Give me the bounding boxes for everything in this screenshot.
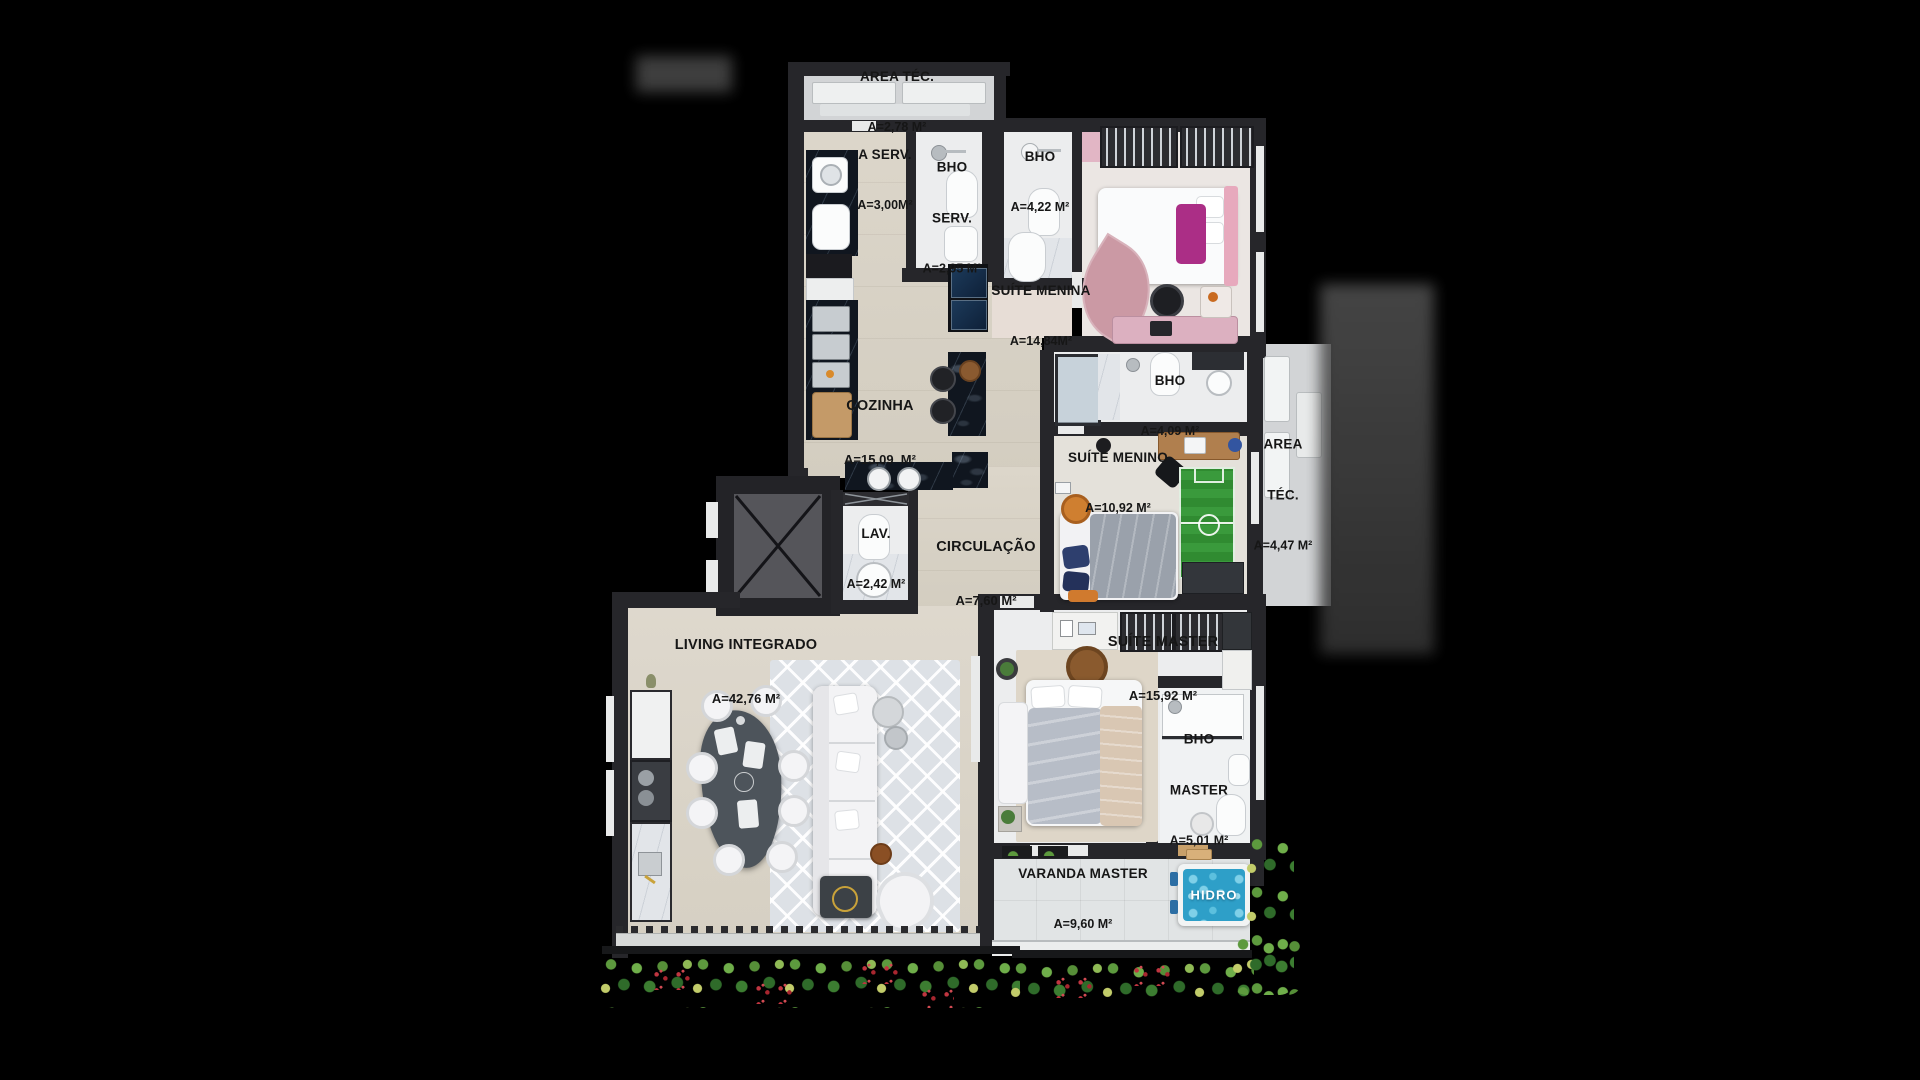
fruit-bowl	[959, 360, 981, 382]
room-area: A=10,92 M²	[1068, 501, 1168, 516]
label-varanda-master: VARANDA MASTER A=9,60 M²	[1018, 830, 1148, 968]
magenta-throw	[1176, 204, 1206, 264]
soccer-rug-centercircle	[1198, 514, 1220, 536]
label-area-tec-right: AREA TÉC. A=4,47 M²	[1254, 401, 1313, 590]
tray	[638, 790, 654, 806]
room-area: A=14,84M²	[991, 334, 1090, 349]
bed-menina-headboard	[1224, 186, 1238, 286]
dining-chair	[778, 750, 810, 782]
label-a-serv: A SERV. A=3,00M²	[857, 111, 912, 249]
wardrobe-menina	[1100, 126, 1178, 168]
marble-divider	[1098, 354, 1120, 420]
burner-flame	[826, 370, 834, 378]
tray	[638, 770, 654, 786]
sofa-cushion-line	[829, 742, 875, 744]
sofa-pillow	[832, 692, 859, 716]
label-bho-master: BHO MASTER A=5,01 M²	[1170, 696, 1229, 885]
sofa-cushion-line	[829, 800, 875, 802]
pillow	[1030, 685, 1065, 709]
vanity-mirror	[1222, 612, 1252, 650]
red-flowers	[858, 962, 898, 984]
bowl-orange	[1208, 292, 1218, 302]
dining-chair	[713, 844, 745, 876]
room-area: A=3,00M²	[857, 198, 912, 213]
wall	[978, 856, 994, 952]
wall	[1040, 350, 1054, 612]
room-name: TÉC.	[1254, 488, 1313, 503]
label-bho-serv: BHO SERV. A=2,95 M²	[923, 124, 982, 313]
room-name: SERV.	[923, 211, 982, 226]
table-centerpiece	[734, 772, 754, 792]
vase-dried-flowers	[646, 674, 656, 688]
room-area: A=4,22 M²	[1011, 200, 1070, 215]
room-name: VARANDA MASTER	[1018, 866, 1148, 881]
bench-white	[998, 702, 1028, 804]
washer-door	[820, 164, 842, 186]
room-name: LIVING INTEGRADO	[675, 637, 818, 654]
red-flowers	[1052, 976, 1092, 998]
room-area: A=4,47 M²	[1254, 539, 1313, 554]
wall	[908, 490, 918, 612]
framed-art	[1078, 622, 1096, 635]
label-living: LIVING INTEGRADO A=42,76 M²	[675, 601, 818, 743]
wall	[612, 592, 628, 958]
room-name: AREA TÉC.	[860, 69, 934, 84]
floorplan-scene: HIDRO AREA TÉC. A=2,78 M² A SERV. A=3,00…	[0, 0, 1920, 1080]
cooktop-module	[812, 306, 850, 332]
room-name: AREA	[1254, 437, 1313, 452]
hidro-step	[1170, 900, 1178, 914]
plant-small	[1000, 662, 1014, 676]
hidro-label-text: HIDRO	[1191, 888, 1238, 903]
room-name: COZINHA	[844, 398, 916, 415]
sliding-door	[971, 656, 980, 762]
room-area: A=9,60 M²	[1018, 917, 1148, 932]
window	[1256, 686, 1264, 800]
window	[1256, 146, 1264, 232]
cooktop-module	[812, 334, 850, 360]
laundry-sink	[812, 204, 850, 250]
framed-art	[1060, 620, 1073, 637]
desk-stool-blue	[1228, 438, 1242, 452]
room-name: MASTER	[1170, 783, 1229, 798]
room-name: BHO	[1170, 732, 1229, 747]
red-flowers	[918, 988, 954, 1008]
label-bho-social: BHO A=4,22 M²	[1011, 113, 1070, 251]
window	[1256, 252, 1264, 332]
bar-stool	[930, 398, 956, 424]
shower-head	[1126, 358, 1140, 372]
window	[606, 696, 614, 762]
wardrobe-menina	[1180, 126, 1254, 168]
hat-on-rug	[870, 843, 892, 865]
sofa-pillow	[834, 809, 860, 831]
wall-basin	[1228, 754, 1250, 786]
living-fringe	[616, 926, 980, 933]
room-name: BHO	[1011, 149, 1070, 164]
window	[606, 770, 614, 836]
dining-chair	[686, 797, 718, 829]
dining-chair	[778, 795, 810, 827]
label-suite-menina: SUÍTE MENINA A=14,84M²	[991, 247, 1090, 385]
laptop	[1150, 321, 1172, 336]
bar-cabinet-top	[630, 690, 672, 760]
room-name: SUÍTE MASTER	[1108, 634, 1218, 651]
label-lav: LAV. A=2,42 M²	[847, 490, 906, 628]
sofa-cushion-line	[829, 858, 875, 860]
label-cozinha: COZINHA A=15,09 M²	[844, 362, 916, 504]
room-name: BHO	[1141, 373, 1200, 388]
plant-corner-cluster	[1232, 930, 1302, 995]
room-name: SUÍTE MENINA	[991, 283, 1090, 298]
wall	[831, 490, 843, 612]
room-name: CIRCULAÇÃO	[936, 539, 1035, 556]
credenza	[1182, 562, 1244, 594]
table-placemat	[737, 799, 759, 829]
dining-chair	[766, 841, 798, 873]
throw-orange	[1068, 590, 1098, 602]
gray-smudge	[636, 56, 732, 92]
side-table	[872, 696, 904, 728]
door-frame	[706, 502, 718, 538]
room-name: BHO	[923, 160, 982, 175]
elevator-x-mark	[734, 494, 822, 598]
nightstand	[1200, 286, 1232, 318]
label-suite-menino: SUÍTE MENINO A=10,92 M²	[1068, 414, 1168, 552]
plant-small	[1001, 810, 1015, 824]
red-flowers	[752, 982, 792, 1004]
desk-chair	[1150, 284, 1184, 318]
room-area: A=7,60 M²	[936, 592, 1035, 609]
table-placemat	[742, 741, 765, 770]
vanity-cabinet	[1222, 650, 1252, 690]
gold-tray	[832, 886, 858, 912]
room-name: SUÍTE MENINO	[1068, 450, 1168, 465]
kitchen-cabinet-low	[952, 452, 988, 488]
gray-smudge	[1320, 284, 1434, 654]
room-area: A=5,01 M²	[1170, 834, 1229, 849]
bar-sink	[638, 852, 662, 876]
round-sink	[1206, 370, 1232, 396]
room-name: A SERV.	[857, 147, 912, 162]
side-table-small	[884, 726, 908, 750]
bar-stool	[930, 366, 956, 392]
wall	[978, 610, 994, 860]
label-circulacao: CIRCULAÇÃO A=7,60 M²	[936, 503, 1035, 645]
pillow	[1067, 685, 1102, 709]
room-area: A=15,09 M²	[844, 451, 916, 468]
room-area: A=2,95 M²	[923, 262, 982, 277]
dining-chair	[686, 752, 718, 784]
red-flowers	[650, 968, 690, 990]
bed-master-duvet	[1028, 708, 1102, 824]
room-area: A=42,76 M²	[675, 690, 818, 707]
counter-white	[806, 278, 854, 302]
room-name: LAV.	[847, 526, 906, 541]
sofa-pillow	[835, 750, 862, 773]
room-area: A=2,42 M²	[847, 577, 906, 592]
vanity-counter	[1192, 352, 1244, 370]
